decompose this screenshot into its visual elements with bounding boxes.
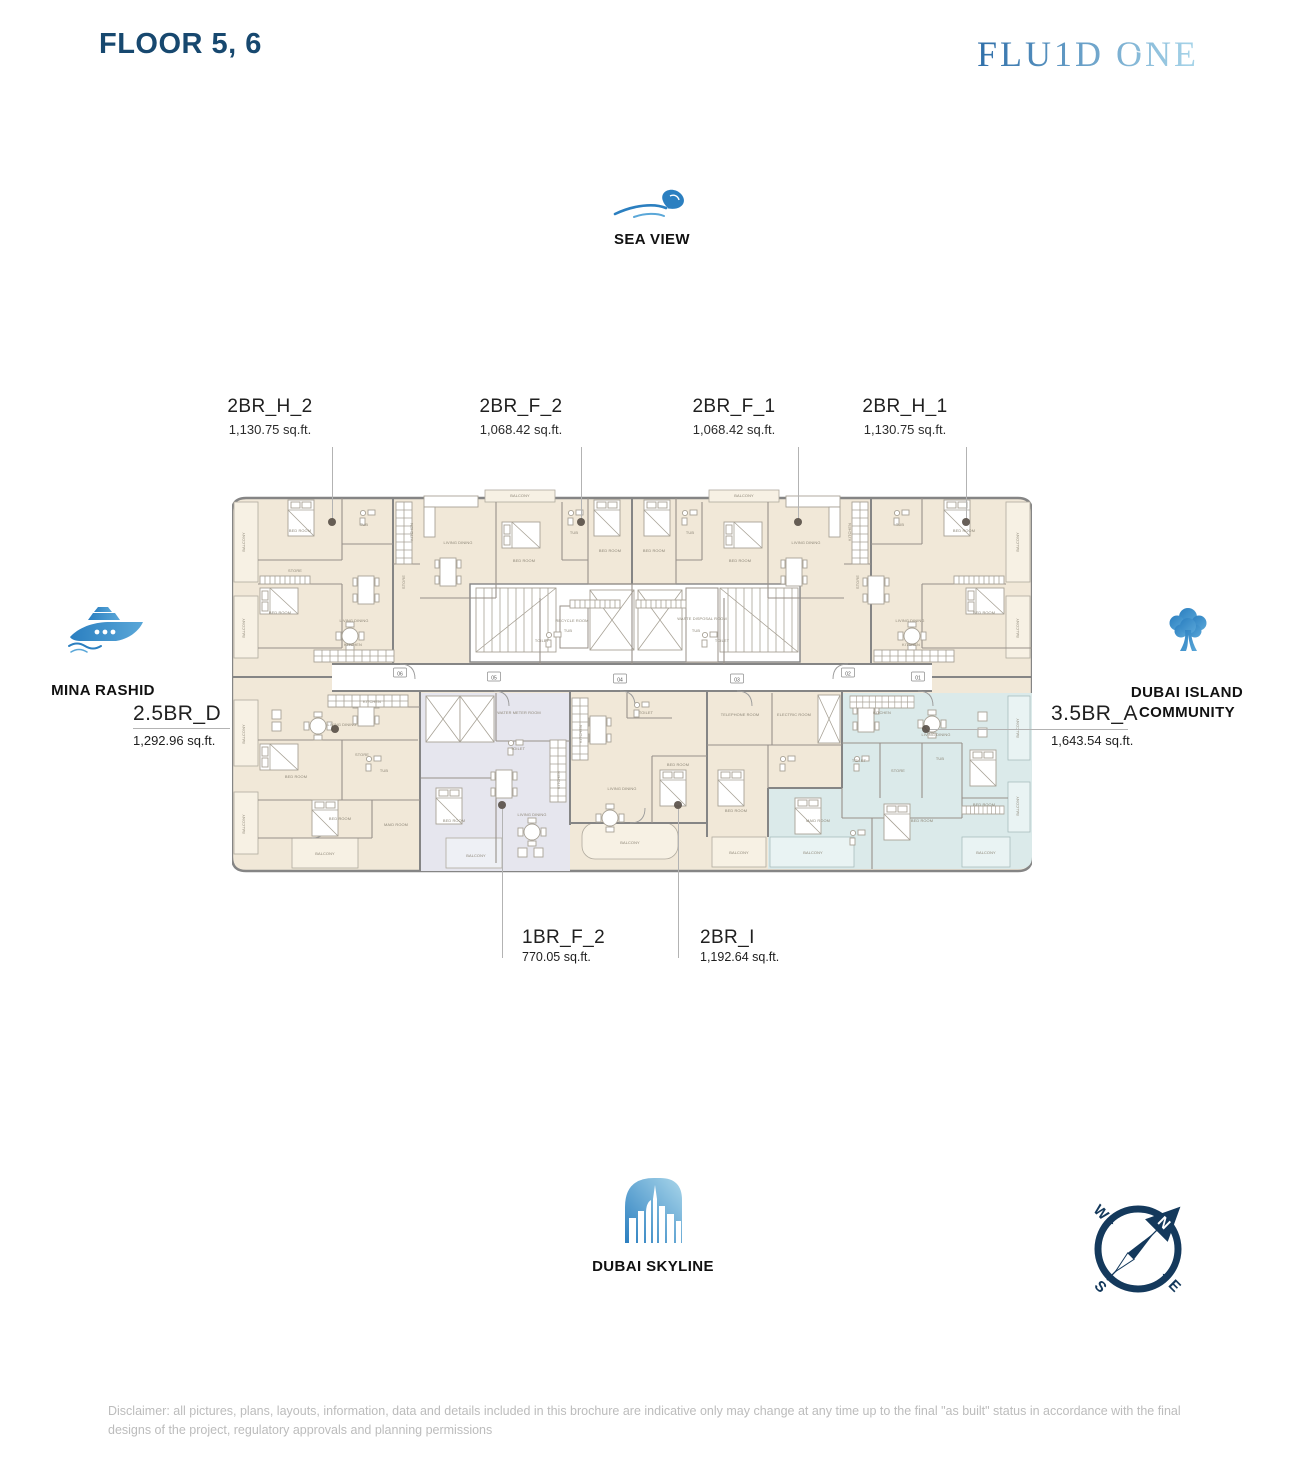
svg-text:TUB: TUB: [936, 756, 944, 761]
waste-disposal-room: [686, 588, 718, 662]
leader-line: [678, 809, 679, 958]
svg-text:TUB: TUB: [564, 628, 572, 633]
svg-text:STORE: STORE: [355, 752, 369, 757]
page-title: FLOOR 5, 6: [99, 28, 262, 61]
svg-text:LIVING DINING: LIVING DINING: [339, 618, 368, 623]
svg-text:STORE: STORE: [288, 568, 302, 573]
svg-text:BED ROOM: BED ROOM: [667, 762, 689, 767]
svg-text:BALCONY: BALCONY: [1015, 718, 1020, 738]
unit-area: 1,068.42 sq.ft.: [446, 422, 596, 437]
svg-text:BED ROOM: BED ROOM: [329, 816, 351, 821]
svg-text:TUB: TUB: [686, 530, 694, 535]
unit-area: 1,130.75 sq.ft.: [195, 422, 345, 437]
leader-dot: [922, 725, 930, 733]
svg-text:TOILET: TOILET: [535, 638, 550, 643]
dubai-skyline-label: DUBAI SKYLINE: [568, 1257, 738, 1277]
leader-line: [133, 728, 230, 729]
svg-text:ELECTRIC ROOM: ELECTRIC ROOM: [777, 712, 811, 717]
svg-text:BALCONY: BALCONY: [976, 850, 996, 855]
unit-callout-2br-i: 2BR_I: [700, 927, 755, 949]
svg-text:BED ROOM: BED ROOM: [911, 818, 933, 823]
svg-text:03: 03: [734, 677, 740, 683]
svg-text:BALCONY: BALCONY: [241, 814, 246, 834]
unit-callout-1br-f-2: 1BR_F_2: [522, 927, 605, 949]
unit-id: 2BR_H_1: [830, 396, 980, 418]
unit-id: 2BR_I: [700, 927, 755, 949]
leader-line: [581, 447, 582, 519]
svg-text:BED ROOM: BED ROOM: [643, 548, 665, 553]
tree-icon: [1162, 604, 1214, 656]
leader-dot: [331, 725, 339, 733]
unit-callout-2br-h-1: 2BR_H_1 1,130.75 sq.ft.: [830, 396, 980, 437]
svg-text:BALCONY: BALCONY: [734, 493, 754, 498]
leader-line: [332, 447, 333, 519]
svg-text:LIVING DINING: LIVING DINING: [895, 618, 924, 623]
dubai-island-community-label: DUBAI ISLAND COMMUNITY: [1106, 683, 1268, 724]
svg-text:BED ROOM: BED ROOM: [599, 548, 621, 553]
svg-text:BALCONY: BALCONY: [620, 840, 640, 845]
svg-text:MAID ROOM: MAID ROOM: [806, 818, 830, 823]
unit-id: 2.5BR_D: [133, 702, 221, 726]
svg-text:BALCONY: BALCONY: [1015, 796, 1020, 816]
leader-dot: [794, 518, 802, 526]
svg-text:STORE: STORE: [855, 575, 860, 589]
svg-text:BALCONY: BALCONY: [803, 850, 823, 855]
leader-dot: [577, 518, 585, 526]
unit-callout-2br-h-2: 2BR_H_2 1,130.75 sq.ft.: [195, 396, 345, 437]
svg-text:TUB: TUB: [570, 530, 578, 535]
leader-line: [798, 447, 799, 519]
svg-text:LIVING DINING: LIVING DINING: [791, 540, 820, 545]
fluid-one-logo-icon: FLU1D ONE: [975, 24, 1200, 80]
mina-rashid-label: MINA RASHID: [28, 681, 178, 701]
svg-text:TUB: TUB: [896, 522, 904, 527]
unit-callout-2-5br-d: 2.5BR_D: [133, 702, 221, 726]
ship-icon: [66, 604, 146, 656]
unit-area-2-5br-d: 1,292.96 sq.ft.: [133, 733, 215, 748]
svg-text:LIVING DINING: LIVING DINING: [443, 540, 472, 545]
svg-text:BALCONY: BALCONY: [1015, 618, 1020, 638]
leader-dot: [962, 518, 970, 526]
leader-dot: [328, 518, 336, 526]
svg-text:WATER METER ROOM: WATER METER ROOM: [497, 710, 540, 715]
skyline-icon: [618, 1173, 688, 1245]
svg-text:TOILET: TOILET: [715, 638, 730, 643]
svg-text:KITCHEN: KITCHEN: [409, 523, 414, 541]
disclaimer-text: Disclaimer: all pictures, plans, layouts…: [108, 1402, 1198, 1441]
unit-id: 2BR_F_1: [659, 396, 809, 418]
svg-text:BALCONY: BALCONY: [241, 724, 246, 744]
svg-text:02: 02: [845, 671, 851, 677]
leader-line: [502, 809, 503, 958]
svg-text:04: 04: [617, 677, 623, 683]
unit-area: 1,068.42 sq.ft.: [659, 422, 809, 437]
svg-text:LIVING DINING: LIVING DINING: [607, 786, 636, 791]
svg-text:KITCHEN: KITCHEN: [363, 699, 381, 704]
unit-id: 2BR_H_2: [195, 396, 345, 418]
svg-text:MAID ROOM: MAID ROOM: [384, 822, 408, 827]
svg-text:BALCONY: BALCONY: [1015, 532, 1020, 552]
wave-icon: [612, 184, 692, 226]
unit-callout-2br-f-1: 2BR_F_1 1,068.42 sq.ft.: [659, 396, 809, 437]
svg-text:BED ROOM: BED ROOM: [269, 610, 291, 615]
svg-text:TOILET: TOILET: [639, 710, 654, 715]
svg-text:TELEPHONE ROOM: TELEPHONE ROOM: [721, 712, 759, 717]
svg-text:KITCHEN: KITCHEN: [902, 642, 920, 647]
svg-text:BALCONY: BALCONY: [510, 493, 530, 498]
svg-text:BALCONY: BALCONY: [466, 853, 486, 858]
unit-area: 1,130.75 sq.ft.: [830, 422, 980, 437]
compass-icon: N W E S: [1070, 1179, 1206, 1319]
svg-text:KITCHEN: KITCHEN: [578, 725, 583, 743]
svg-text:BED ROOM: BED ROOM: [953, 528, 975, 533]
unit-area-1br-f-2: 770.05 sq.ft.: [522, 950, 591, 964]
svg-text:TOILET: TOILET: [511, 746, 526, 751]
svg-text:BALCONY: BALCONY: [315, 851, 335, 856]
svg-text:KITCHEN: KITCHEN: [556, 771, 561, 789]
unit-callout-2br-f-2: 2BR_F_2 1,068.42 sq.ft.: [446, 396, 596, 437]
leader-line: [966, 447, 967, 519]
svg-text:BED ROOM: BED ROOM: [973, 610, 995, 615]
compass-s: S: [1091, 1277, 1110, 1296]
svg-text:BED ROOM: BED ROOM: [725, 808, 747, 813]
svg-text:01: 01: [915, 675, 921, 681]
leader-dot: [498, 801, 506, 809]
unit-id: 2BR_F_2: [446, 396, 596, 418]
svg-text:06: 06: [397, 671, 403, 677]
svg-text:LIVING DINING: LIVING DINING: [517, 812, 546, 817]
svg-text:STORE: STORE: [891, 768, 905, 773]
svg-text:BED ROOM: BED ROOM: [289, 528, 311, 533]
svg-text:05: 05: [491, 675, 497, 681]
svg-text:BED ROOM: BED ROOM: [729, 558, 751, 563]
svg-text:TUB: TUB: [380, 768, 388, 773]
svg-text:STORE: STORE: [401, 575, 406, 589]
unit-area-2br-i: 1,192.64 sq.ft.: [700, 950, 779, 964]
svg-text:KITCHEN: KITCHEN: [847, 523, 852, 541]
unit-id: 1BR_F_2: [522, 927, 605, 949]
svg-text:KITCHEN: KITCHEN: [873, 710, 891, 715]
brand-logo-text: FLU1D ONE: [977, 34, 1199, 74]
leader-line: [930, 729, 1128, 730]
svg-text:BALCONY: BALCONY: [241, 618, 246, 638]
svg-text:BED ROOM: BED ROOM: [443, 818, 465, 823]
svg-text:TOILET: TOILET: [852, 758, 867, 763]
svg-text:KITCHEN: KITCHEN: [344, 642, 362, 647]
floor-plan: 060504030201 BALCONYBED ROOMTUBSTOREBED …: [232, 488, 1032, 880]
svg-text:BED ROOM: BED ROOM: [973, 802, 995, 807]
svg-text:BED ROOM: BED ROOM: [285, 774, 307, 779]
brochure-page: FLOOR 5, 6 FLU1D ONE SEA VIEW 2BR_H_2 1,…: [0, 0, 1300, 1473]
leader-dot: [674, 801, 682, 809]
svg-text:TUB: TUB: [360, 522, 368, 527]
brand-logo: FLU1D ONE: [975, 24, 1200, 80]
floor-plan-drawing: 060504030201 BALCONYBED ROOMTUBSTOREBED …: [232, 488, 1032, 880]
recycle-room: [560, 606, 588, 648]
svg-text:RECYCLE ROOM: RECYCLE ROOM: [555, 618, 588, 623]
svg-text:BALCONY: BALCONY: [729, 850, 749, 855]
svg-text:BED ROOM: BED ROOM: [513, 558, 535, 563]
svg-text:TUB: TUB: [692, 628, 700, 633]
sea-view-label: SEA VIEW: [582, 230, 722, 250]
svg-text:WASTE DISPOSAL ROOM: WASTE DISPOSAL ROOM: [677, 616, 727, 621]
svg-text:BALCONY: BALCONY: [241, 532, 246, 552]
unit-area-3-5br-a: 1,643.54 sq.ft.: [1051, 733, 1133, 748]
